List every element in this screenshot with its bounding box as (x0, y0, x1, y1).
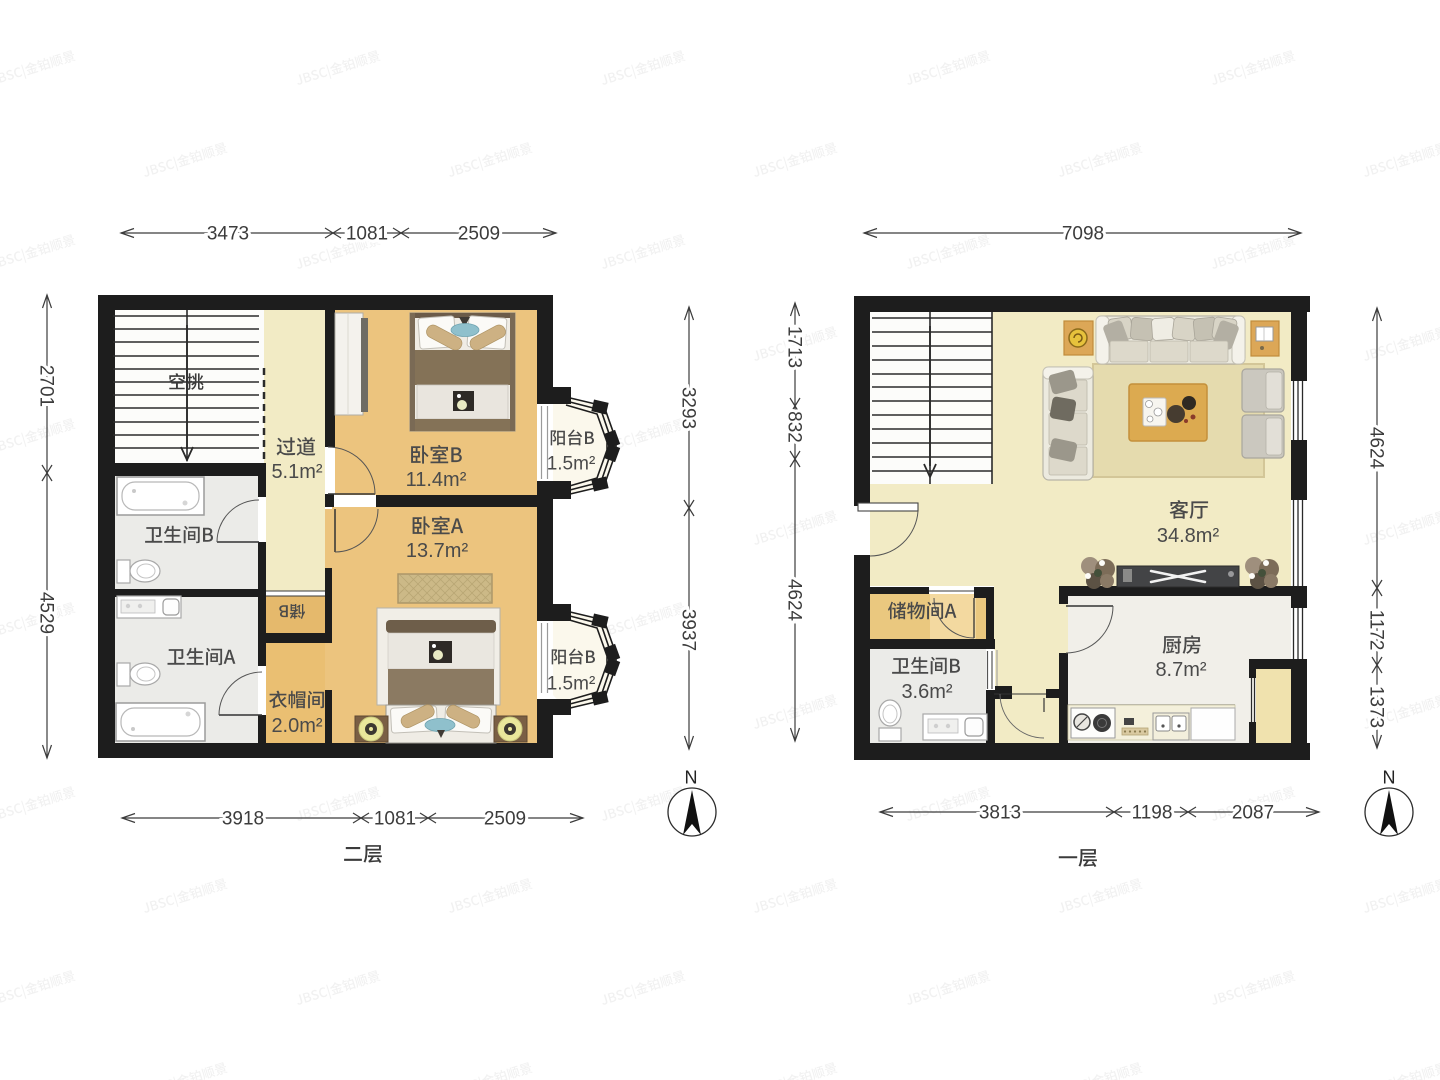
svg-text:N: N (685, 767, 698, 787)
svg-text:2701: 2701 (35, 365, 56, 407)
svg-text:1.5m²: 1.5m² (547, 454, 596, 475)
svg-text:3918: 3918 (222, 809, 264, 830)
svg-text:8.7m²: 8.7m² (1155, 659, 1206, 681)
svg-text:1198: 1198 (1132, 803, 1173, 824)
svg-text:34.8m²: 34.8m² (1157, 525, 1220, 547)
svg-text:11.4m²: 11.4m² (406, 469, 467, 491)
svg-text:3813: 3813 (979, 803, 1021, 824)
svg-text:1373: 1373 (1365, 686, 1386, 728)
svg-text:2509: 2509 (458, 224, 500, 245)
svg-text:N: N (1383, 767, 1396, 787)
svg-text:13.7m²: 13.7m² (406, 540, 469, 562)
svg-text:3937: 3937 (677, 609, 698, 651)
svg-text:7098: 7098 (1062, 224, 1104, 245)
svg-text:4624: 4624 (1365, 427, 1386, 470)
svg-text:3473: 3473 (207, 224, 249, 245)
svg-text:1.5m²: 1.5m² (547, 674, 596, 695)
svg-text:832: 832 (783, 411, 804, 443)
svg-text:5.1m²: 5.1m² (271, 461, 322, 483)
svg-text:2087: 2087 (1232, 803, 1274, 824)
svg-text:2509: 2509 (484, 809, 526, 830)
svg-text:1172: 1172 (1365, 610, 1386, 651)
svg-text:3.6m²: 3.6m² (901, 681, 952, 703)
svg-text:4624: 4624 (783, 579, 804, 622)
svg-text:3293: 3293 (677, 387, 698, 429)
svg-text:4529: 4529 (35, 592, 56, 634)
svg-text:1713: 1713 (783, 326, 804, 368)
svg-text:1081: 1081 (346, 224, 388, 245)
svg-text:1081: 1081 (374, 809, 416, 830)
svg-text:2.0m²: 2.0m² (271, 715, 322, 737)
